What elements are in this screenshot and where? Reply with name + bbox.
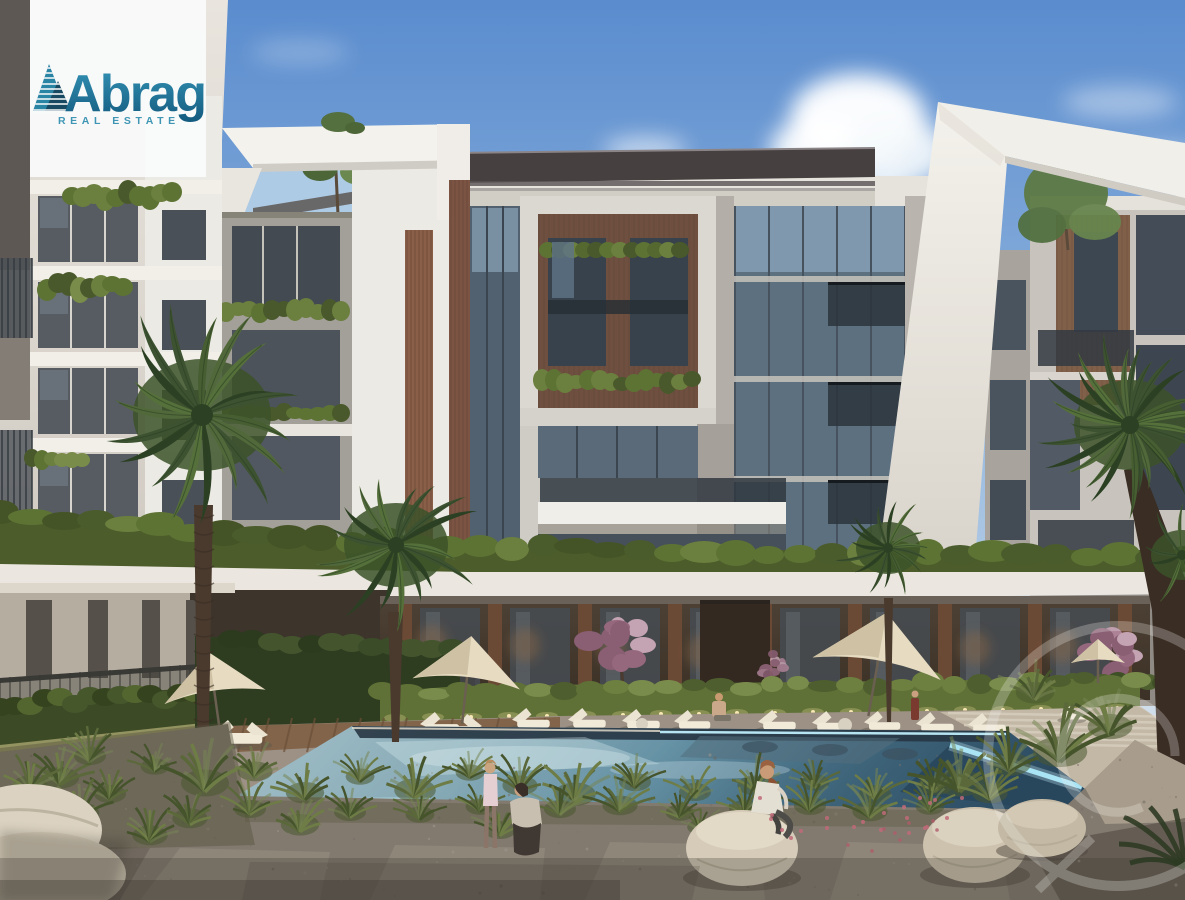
svg-text:REAL ESTATE: REAL ESTATE xyxy=(58,115,180,127)
